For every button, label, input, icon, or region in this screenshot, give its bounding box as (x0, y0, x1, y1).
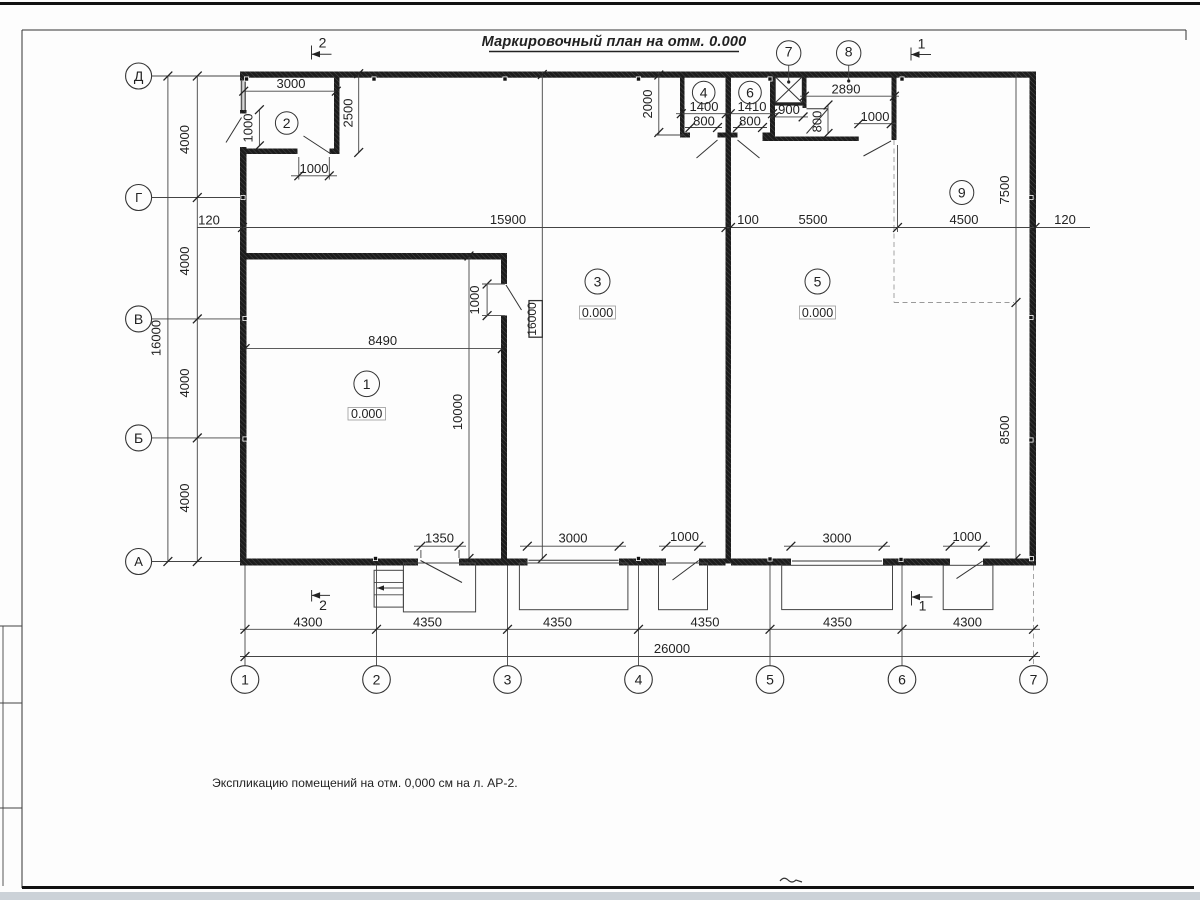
svg-text:26000: 26000 (654, 641, 690, 656)
svg-text:5500: 5500 (799, 212, 828, 227)
svg-text:1350: 1350 (425, 531, 454, 546)
svg-text:1: 1 (918, 36, 926, 52)
svg-text:3000: 3000 (277, 76, 306, 91)
svg-text:1: 1 (241, 672, 249, 688)
svg-text:3: 3 (504, 672, 512, 688)
svg-text:0.000: 0.000 (802, 306, 833, 320)
svg-text:4300: 4300 (294, 614, 323, 629)
svg-text:Маркировочный план на отм. 0.0: Маркировочный план на отм. 0.000 (482, 34, 747, 50)
svg-text:6: 6 (746, 85, 754, 101)
svg-text:0.000: 0.000 (582, 306, 613, 320)
svg-text:4500: 4500 (950, 212, 979, 227)
svg-text:В: В (134, 311, 143, 327)
svg-text:4000: 4000 (177, 484, 192, 513)
svg-text:4000: 4000 (177, 125, 192, 154)
svg-text:15900: 15900 (490, 212, 526, 227)
svg-text:Экспликацию помещений на отм.: Экспликацию помещений на отм. 0,000 см н… (212, 776, 518, 790)
svg-text:2: 2 (319, 35, 327, 51)
svg-text:А: А (134, 554, 143, 569)
svg-text:Д: Д (134, 68, 144, 84)
svg-text:9: 9 (958, 185, 966, 201)
svg-text:3000: 3000 (559, 531, 588, 546)
svg-text:800: 800 (739, 114, 761, 129)
svg-text:1000: 1000 (300, 161, 329, 176)
svg-text:100: 100 (737, 212, 759, 227)
svg-text:10000: 10000 (450, 394, 465, 430)
svg-text:5: 5 (766, 672, 774, 688)
svg-text:2: 2 (283, 115, 291, 131)
svg-text:5: 5 (814, 274, 822, 290)
svg-text:7: 7 (785, 44, 793, 60)
svg-text:8500: 8500 (997, 416, 1012, 445)
svg-text:8: 8 (845, 44, 853, 60)
svg-text:2500: 2500 (341, 99, 356, 128)
svg-text:4350: 4350 (413, 614, 442, 629)
svg-text:2000: 2000 (640, 90, 655, 119)
svg-text:800: 800 (810, 111, 825, 133)
svg-text:0.000: 0.000 (351, 407, 382, 421)
svg-text:4: 4 (635, 672, 643, 688)
svg-text:1400: 1400 (690, 99, 719, 114)
svg-text:7: 7 (1030, 672, 1038, 688)
svg-text:4000: 4000 (177, 369, 192, 398)
svg-text:16000: 16000 (525, 302, 539, 336)
svg-text:120: 120 (198, 213, 220, 228)
svg-text:1: 1 (363, 376, 371, 392)
svg-text:8490: 8490 (368, 333, 397, 348)
svg-text:900: 900 (778, 102, 800, 117)
svg-text:2: 2 (373, 672, 381, 688)
svg-text:4350: 4350 (691, 614, 720, 629)
svg-text:Г: Г (135, 190, 142, 205)
svg-text:6: 6 (898, 672, 906, 688)
svg-text:1410: 1410 (738, 99, 767, 114)
svg-text:4: 4 (700, 85, 708, 101)
svg-text:16000: 16000 (149, 320, 164, 356)
svg-text:3000: 3000 (823, 531, 852, 546)
svg-text:4000: 4000 (177, 247, 192, 276)
svg-text:1000: 1000 (953, 529, 982, 544)
svg-text:800: 800 (693, 114, 715, 129)
svg-text:4350: 4350 (543, 614, 572, 629)
svg-text:1000: 1000 (467, 286, 482, 315)
svg-text:4350: 4350 (823, 614, 852, 629)
svg-text:1: 1 (919, 598, 927, 614)
svg-text:2: 2 (319, 597, 327, 613)
svg-text:1000: 1000 (670, 529, 699, 544)
svg-text:1000: 1000 (861, 109, 890, 124)
svg-text:1000: 1000 (241, 114, 256, 143)
svg-text:3: 3 (594, 274, 602, 290)
svg-text:120: 120 (1054, 212, 1076, 227)
svg-text:2890: 2890 (832, 82, 861, 97)
svg-text:4300: 4300 (953, 614, 982, 629)
svg-text:Б: Б (134, 430, 143, 446)
svg-text:7500: 7500 (997, 176, 1012, 205)
